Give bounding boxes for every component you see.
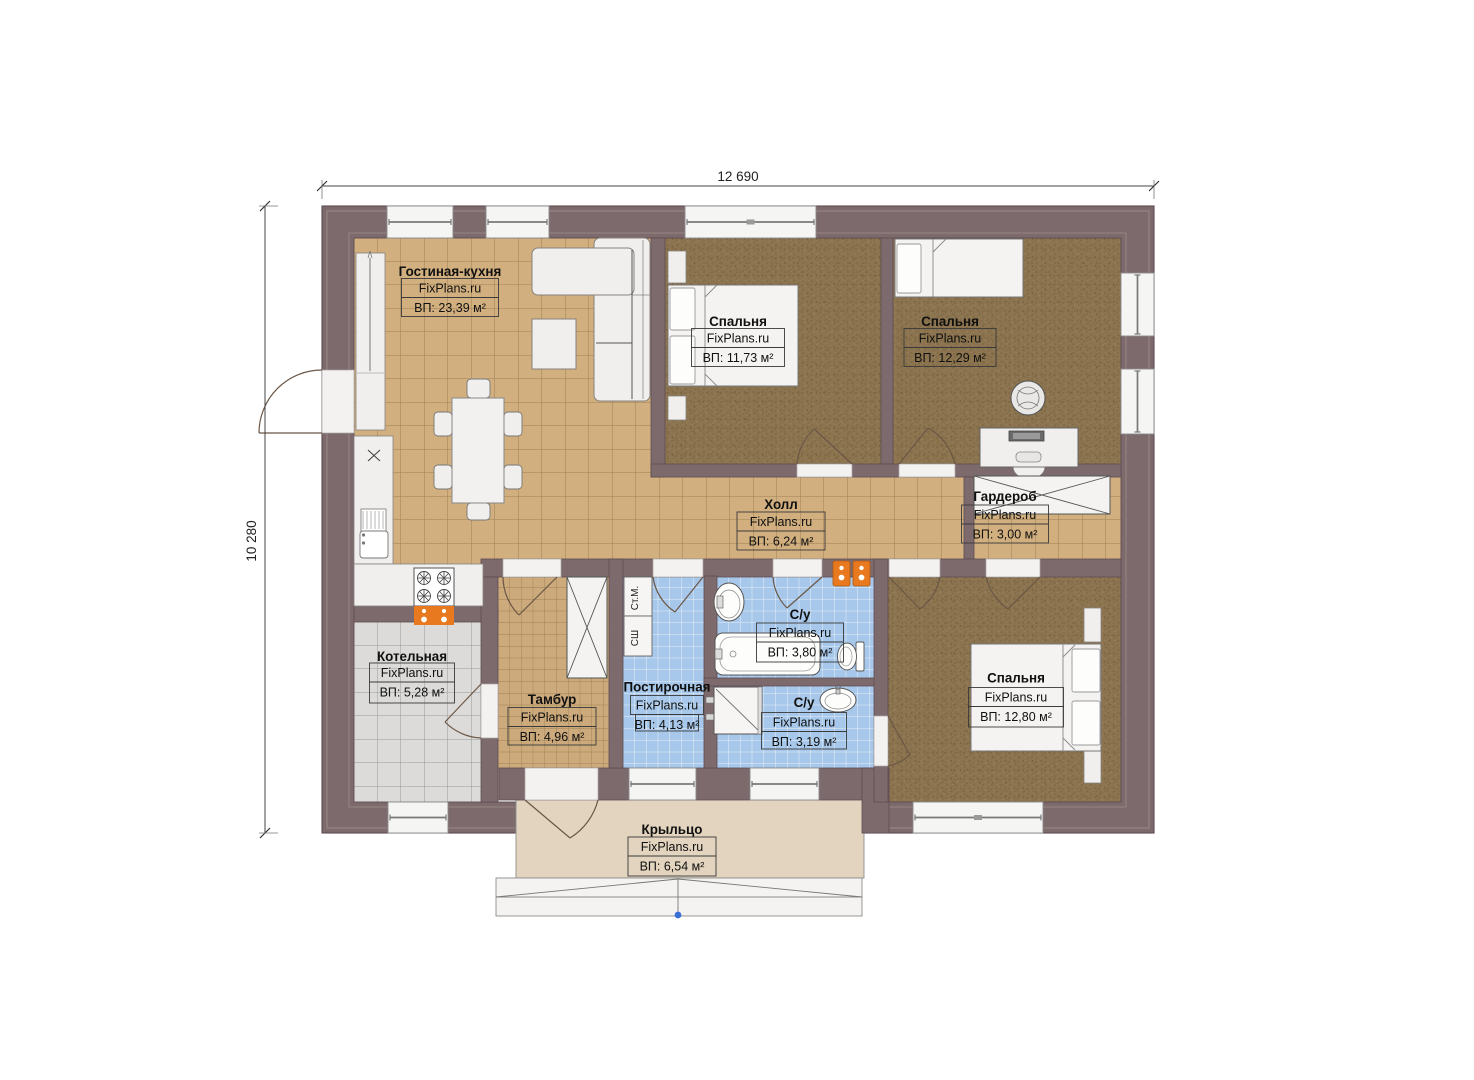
svg-text:ВП: 6,24 м²: ВП: 6,24 м² (749, 535, 814, 549)
svg-text:Спальня: Спальня (987, 671, 1045, 686)
svg-text:Спальня: Спальня (709, 314, 767, 329)
svg-text:FixPlans.ru: FixPlans.ru (521, 711, 584, 725)
svg-text:FixPlans.ru: FixPlans.ru (419, 282, 482, 296)
svg-text:Тамбур: Тамбур (528, 692, 577, 707)
svg-text:Котельная: Котельная (377, 649, 447, 664)
svg-text:12 690: 12 690 (717, 169, 758, 184)
svg-text:ВП: 3,80 м²: ВП: 3,80 м² (768, 646, 833, 660)
svg-text:Спальня: Спальня (921, 314, 979, 329)
svg-text:10 280: 10 280 (244, 520, 259, 561)
svg-text:ВП: 3,19 м²: ВП: 3,19 м² (772, 735, 837, 749)
svg-text:ВП: 5,28 м²: ВП: 5,28 м² (380, 686, 445, 700)
svg-text:FixPlans.ru: FixPlans.ru (919, 332, 982, 346)
svg-text:ВП: 3,00 м²: ВП: 3,00 м² (973, 528, 1038, 542)
svg-text:ВП: 4,13 м²: ВП: 4,13 м² (635, 718, 700, 732)
svg-text:СШ: СШ (630, 630, 641, 646)
svg-text:Гардероб: Гардероб (973, 489, 1036, 504)
svg-text:С/у: С/у (790, 607, 811, 622)
svg-text:FixPlans.ru: FixPlans.ru (750, 515, 813, 529)
svg-text:FixPlans.ru: FixPlans.ru (974, 508, 1037, 522)
svg-text:FixPlans.ru: FixPlans.ru (769, 626, 832, 640)
svg-text:FixPlans.ru: FixPlans.ru (641, 840, 704, 854)
svg-text:ВП: 12,80 м²: ВП: 12,80 м² (980, 710, 1052, 724)
svg-text:ВП: 6,54 м²: ВП: 6,54 м² (640, 860, 705, 874)
svg-text:Ст.М.: Ст.М. (630, 586, 641, 611)
svg-text:FixPlans.ru: FixPlans.ru (707, 332, 770, 346)
svg-text:ВП: 12,29 м²: ВП: 12,29 м² (914, 351, 986, 365)
svg-text:FixPlans.ru: FixPlans.ru (985, 691, 1048, 705)
svg-text:Постирочная: Постирочная (623, 680, 710, 695)
svg-text:Крыльцо: Крыльцо (642, 822, 703, 837)
svg-text:С/у: С/у (794, 695, 815, 710)
svg-text:ВП: 4,96 м²: ВП: 4,96 м² (520, 730, 585, 744)
svg-text:Гостиная-кухня: Гостиная-кухня (399, 264, 502, 279)
svg-text:ВП: 23,39 м²: ВП: 23,39 м² (414, 301, 486, 315)
svg-text:FixPlans.ru: FixPlans.ru (381, 666, 444, 680)
svg-text:FixPlans.ru: FixPlans.ru (773, 716, 836, 730)
svg-text:ВП: 11,73 м²: ВП: 11,73 м² (703, 351, 774, 365)
svg-text:FixPlans.ru: FixPlans.ru (636, 699, 699, 713)
svg-text:Холл: Холл (764, 497, 798, 512)
